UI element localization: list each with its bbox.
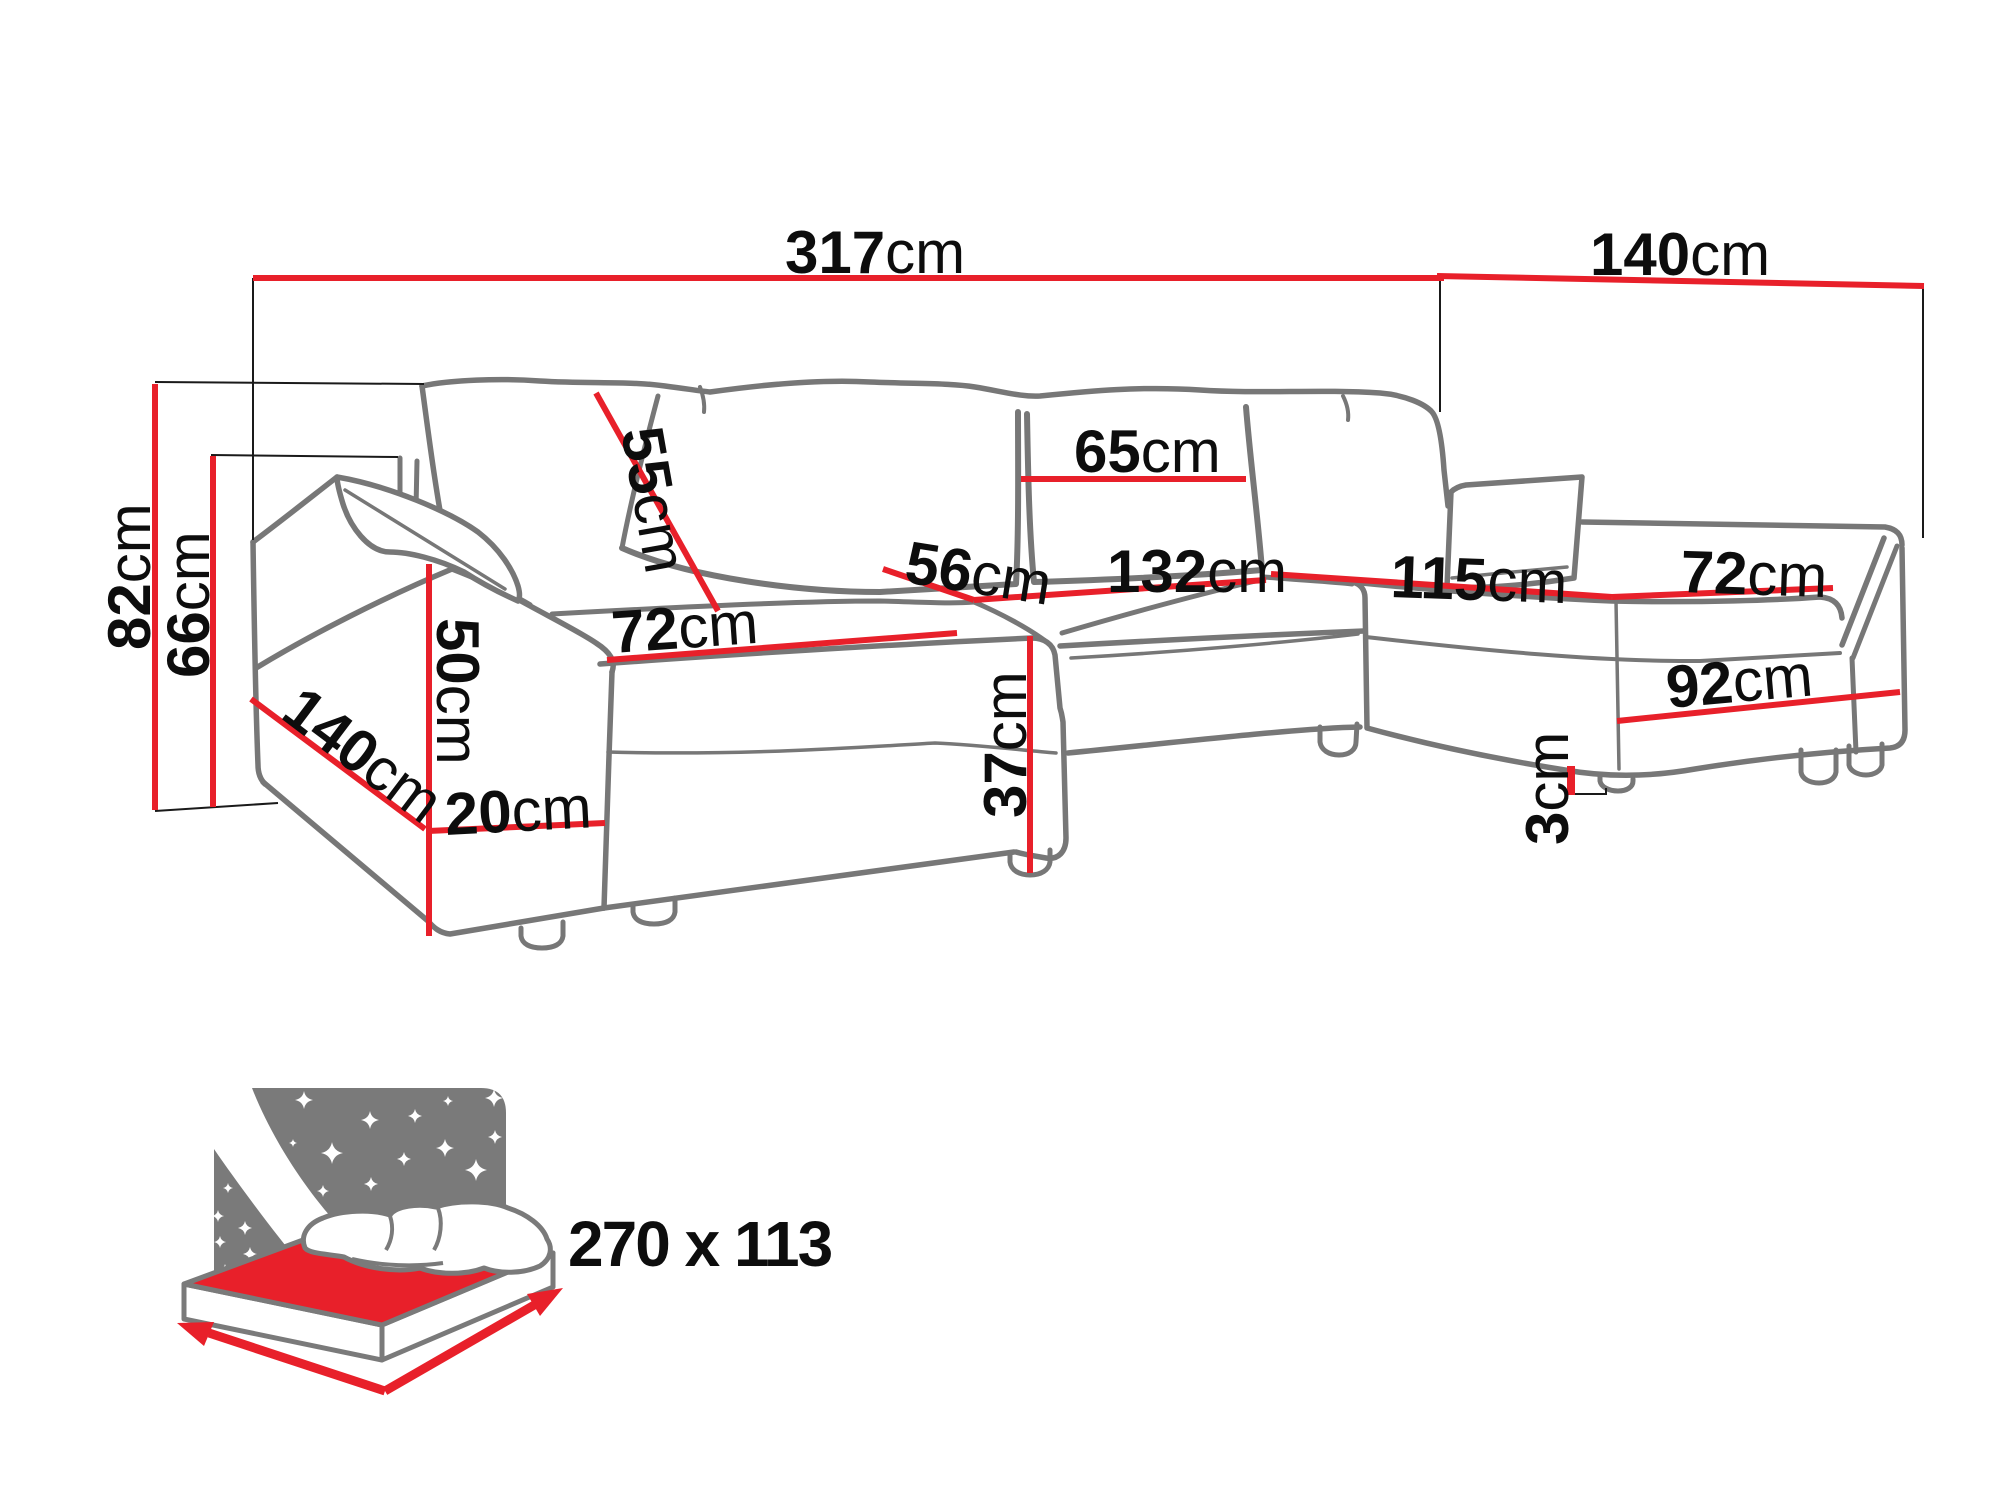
svg-text:82cm: 82cm: [96, 503, 163, 650]
svg-text:20cm: 20cm: [443, 773, 593, 848]
svg-text:3cm: 3cm: [1514, 732, 1581, 845]
svg-text:140cm: 140cm: [1590, 221, 1770, 288]
svg-text:66cm: 66cm: [155, 531, 222, 678]
svg-text:317cm: 317cm: [785, 219, 965, 286]
svg-text:72cm: 72cm: [1680, 538, 1829, 610]
svg-text:115cm: 115cm: [1390, 543, 1569, 616]
svg-text:132cm: 132cm: [1107, 538, 1287, 605]
svg-text:37cm: 37cm: [972, 671, 1039, 818]
svg-text:50cm: 50cm: [424, 618, 491, 765]
svg-text:72cm: 72cm: [609, 589, 760, 666]
svg-text:270 x 113: 270 x 113: [568, 1208, 832, 1280]
svg-text:92cm: 92cm: [1663, 641, 1815, 721]
svg-text:65cm: 65cm: [1074, 418, 1221, 485]
